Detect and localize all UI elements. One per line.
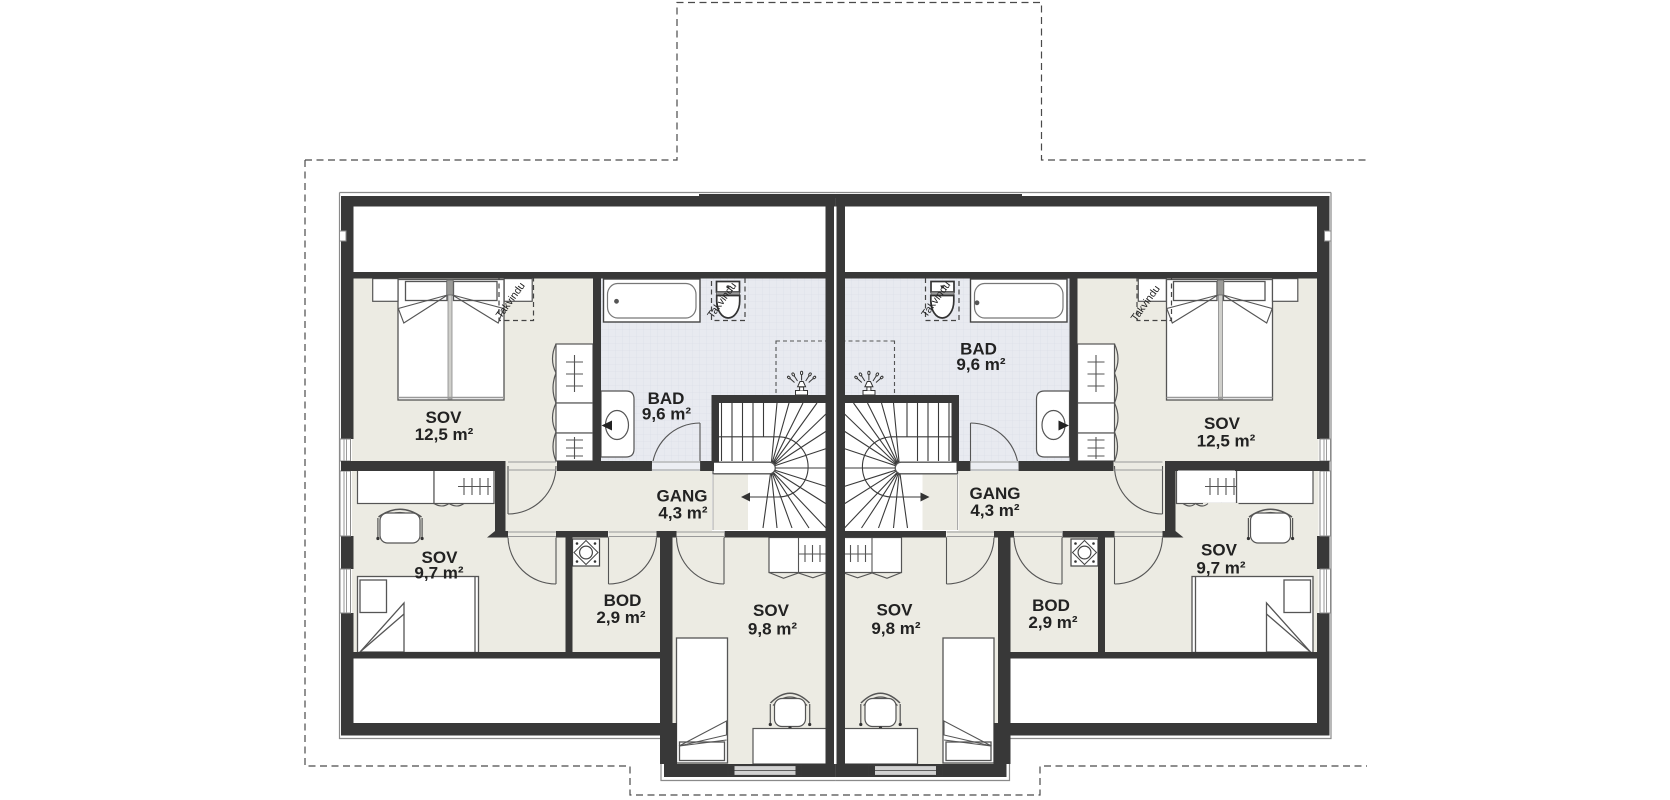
svg-text:12,5 m²: 12,5 m² <box>1197 432 1256 451</box>
svg-text:9,8 m²: 9,8 m² <box>871 619 920 638</box>
svg-text:9,6 m²: 9,6 m² <box>956 355 1005 374</box>
svg-text:9,7 m²: 9,7 m² <box>414 564 463 583</box>
svg-text:SOV: SOV <box>1201 541 1238 560</box>
svg-text:SOV: SOV <box>753 601 790 620</box>
svg-text:SOV: SOV <box>1204 414 1241 433</box>
svg-text:2,9 m²: 2,9 m² <box>1028 613 1077 632</box>
svg-text:SOV: SOV <box>877 601 914 620</box>
svg-text:12,5 m²: 12,5 m² <box>415 425 474 444</box>
svg-text:9,8 m²: 9,8 m² <box>748 620 797 639</box>
svg-text:4,3 m²: 4,3 m² <box>970 501 1019 520</box>
svg-text:9,7 m²: 9,7 m² <box>1196 559 1245 578</box>
svg-text:2,9 m²: 2,9 m² <box>596 608 645 627</box>
svg-text:9,6 m²: 9,6 m² <box>642 405 691 424</box>
svg-text:4,3 m²: 4,3 m² <box>658 504 707 523</box>
